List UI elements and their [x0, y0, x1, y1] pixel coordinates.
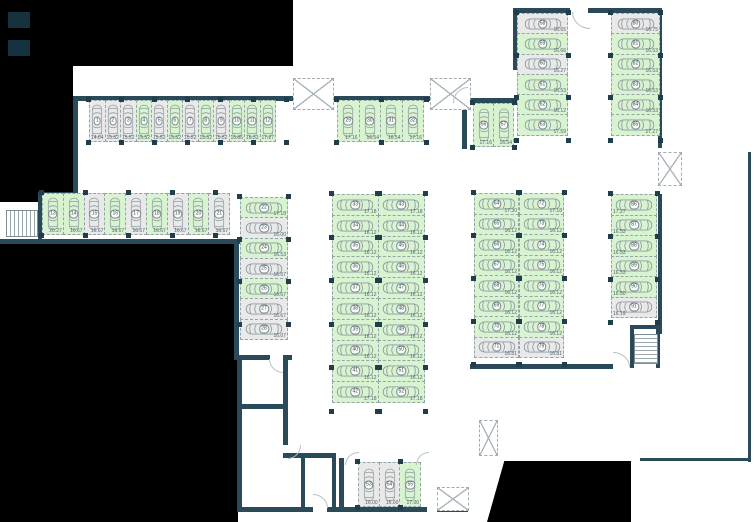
space-number: 63	[538, 121, 548, 130]
structural-column	[375, 278, 380, 283]
space-number: 60	[538, 60, 548, 69]
space-area: 16.86	[230, 135, 243, 141]
parking-space-64[interactable]: 64 17.30	[474, 193, 519, 215]
parking-space-72[interactable]: 72 17.18	[519, 193, 564, 215]
parking-space-83[interactable]: 83 16.53	[611, 74, 660, 95]
space-number: 64	[492, 199, 502, 208]
stairs-icon	[6, 210, 38, 237]
parking-space-42[interactable]: 42 17.18	[332, 381, 379, 403]
structural-column	[471, 362, 476, 367]
parking-space-5[interactable]: 5 15.52	[151, 100, 168, 142]
space-number: 83	[631, 80, 641, 89]
space-number: 88	[629, 241, 639, 250]
structural-column	[126, 233, 131, 238]
structural-column	[375, 191, 380, 196]
space-area: 16.00	[386, 500, 399, 506]
space-number: 7	[187, 117, 194, 126]
space-number: 3	[125, 117, 132, 126]
parking-space-55[interactable]: 55 17.00	[399, 462, 421, 507]
space-number: 89	[629, 262, 639, 271]
parking-space-87[interactable]: 87 16.53	[611, 215, 657, 237]
parking-col-33-42: 33 17.18 34 16.12 35 16.12 36 16.12 37 1…	[332, 194, 379, 403]
parking-space-67[interactable]: 67 16.12	[474, 255, 519, 277]
structural-column	[375, 322, 380, 327]
space-number: 19	[173, 210, 183, 219]
space-number: 77	[537, 302, 547, 311]
space-area: 17.59	[553, 129, 566, 135]
parking-space-2[interactable]: 2 15.52	[105, 100, 122, 142]
space-number: 36	[350, 263, 360, 272]
space-number: 46	[396, 263, 406, 272]
space-number: 33	[350, 200, 360, 209]
parking-space-37[interactable]: 37 16.12	[332, 277, 379, 299]
space-number: 80	[631, 19, 641, 28]
structural-column	[375, 365, 380, 370]
structural-column	[126, 190, 131, 195]
parking-space-73[interactable]: 73 16.12	[519, 214, 564, 236]
space-number: 79	[537, 343, 547, 352]
parking-space-84[interactable]: 84 16.53	[611, 94, 660, 115]
parking-space-44[interactable]: 44 16.12	[378, 215, 425, 237]
parking-space-81[interactable]: 81 16.53	[611, 33, 660, 54]
space-number: 76	[537, 281, 547, 290]
parking-col-80-85: 80 16.75 81 16.53 82 16.53 83 16.53 84 1…	[611, 13, 660, 136]
space-number: 23	[259, 223, 269, 232]
wall	[327, 507, 339, 512]
space-area: 16.67	[174, 228, 187, 234]
structural-column	[334, 97, 339, 102]
void-area	[0, 0, 293, 66]
space-number: 21	[214, 210, 224, 219]
parking-space-60[interactable]: 60 16.27	[517, 54, 568, 75]
structural-column	[329, 322, 334, 327]
structural-column	[251, 140, 256, 145]
parking-space-31[interactable]: 31 16.54	[380, 100, 403, 142]
space-area: 17.16	[409, 135, 422, 141]
parking-space-25[interactable]: 25 16.67	[240, 258, 288, 279]
structural-column	[655, 320, 660, 325]
parking-space-18[interactable]: 18 16.67	[146, 193, 168, 235]
wall	[470, 364, 613, 369]
parking-space-43[interactable]: 43 17.18	[378, 194, 425, 216]
parking-col-43-52: 43 17.18 44 16.12 45 16.12 46 16.12 47 1…	[378, 194, 425, 403]
structural-column	[608, 53, 613, 58]
wall	[237, 507, 313, 512]
structural-column	[514, 53, 519, 58]
parking-col-58-63: 58 16.65 59 16.66 60 16.27 61 16.53 62 1…	[517, 13, 568, 136]
parking-space-35[interactable]: 35 16.12	[332, 236, 379, 258]
space-number: 9	[218, 117, 225, 126]
parking-space-86[interactable]: 86 17.27	[611, 194, 657, 216]
structural-column	[423, 365, 428, 370]
structural-column	[512, 100, 517, 105]
wall	[0, 239, 240, 244]
space-area: 16.67	[195, 228, 208, 234]
parking-space-29[interactable]: 29 17.16	[337, 100, 360, 142]
structural-column	[237, 322, 242, 327]
structural-column	[514, 10, 519, 15]
space-area: 15.52	[168, 135, 181, 141]
structural-column	[516, 319, 521, 324]
structural-column	[608, 320, 613, 325]
parking-space-17[interactable]: 17 16.67	[125, 193, 147, 235]
space-number: 20	[194, 210, 204, 219]
wall	[339, 507, 427, 512]
space-area: 17.16	[479, 140, 492, 146]
space-number: 61	[538, 80, 548, 89]
space-number: 6	[171, 117, 178, 126]
parking-space-10[interactable]: 10 16.86	[229, 100, 246, 142]
space-number: 59	[538, 39, 548, 48]
space-area: 16.00	[365, 500, 378, 506]
space-number: 91	[629, 303, 639, 312]
parking-space-46[interactable]: 46 16.12	[378, 256, 425, 278]
structural-column	[566, 138, 571, 143]
parking-space-79[interactable]: 79 16.81	[519, 337, 564, 359]
space-number: 42	[350, 388, 360, 397]
space-number: 14	[69, 210, 79, 219]
parking-space-40[interactable]: 40 16.12	[332, 340, 379, 362]
shaft-icon	[658, 152, 682, 186]
parking-space-53[interactable]: 53 16.00	[358, 462, 380, 507]
structural-column	[655, 191, 660, 196]
space-number: 71	[492, 343, 502, 352]
space-number: 26	[259, 284, 269, 293]
parking-space-70[interactable]: 70 16.12	[474, 316, 519, 338]
parking-space-20[interactable]: 20 16.67	[188, 193, 210, 235]
space-number: 41	[350, 367, 360, 376]
space-area: 14.04	[91, 135, 104, 141]
parking-space-12[interactable]: 12 17.27	[260, 100, 277, 142]
structural-column	[423, 191, 428, 196]
parking-space-91[interactable]: 91 16.19	[611, 297, 657, 319]
space-number: 1	[94, 117, 101, 126]
wall	[658, 194, 662, 334]
structural-column	[562, 233, 567, 238]
structural-column	[152, 140, 157, 145]
structural-column	[608, 138, 613, 143]
parking-space-63[interactable]: 63 17.59	[517, 114, 568, 135]
space-area: 16.54	[499, 140, 512, 146]
space-area: 16.67	[112, 228, 125, 234]
space-number: 25	[259, 264, 269, 273]
space-number: 72	[537, 199, 547, 208]
space-number: 56	[479, 121, 489, 130]
parking-space-33[interactable]: 33 17.18	[332, 194, 379, 216]
stairs-icon	[634, 334, 658, 364]
parking-space-61[interactable]: 61 16.53	[517, 74, 568, 95]
space-number: 39	[350, 325, 360, 334]
structural-column	[566, 53, 571, 58]
parking-space-21[interactable]: 21 16.67	[208, 193, 230, 235]
structural-column	[424, 97, 429, 102]
space-number: 69	[492, 302, 502, 311]
space-number: 30	[365, 117, 375, 126]
parking-space-75[interactable]: 75 16.12	[519, 255, 564, 277]
parking-space-57[interactable]: 57 16.54	[493, 103, 514, 147]
space-number: 66	[492, 240, 502, 249]
parking-space-1[interactable]: 1 14.04	[89, 100, 106, 142]
structural-column	[286, 279, 291, 284]
parking-space-26[interactable]: 26 16.67	[240, 278, 288, 299]
parking-space-36[interactable]: 36 16.12	[332, 256, 379, 278]
structural-column	[334, 140, 339, 145]
parking-row-13-21: 13 20.27 14 16.67 15 16.67 16 16.67 17 1…	[42, 193, 230, 235]
parking-space-23[interactable]: 23 16.00	[240, 217, 288, 238]
parking-space-39[interactable]: 39 16.12	[332, 319, 379, 341]
structural-column	[251, 97, 256, 102]
space-number: 15	[90, 210, 100, 219]
parking-space-45[interactable]: 45 16.12	[378, 236, 425, 258]
parking-space-13[interactable]: 13 20.27	[42, 193, 64, 235]
space-area: 17.27	[261, 135, 274, 141]
structural-column	[329, 365, 334, 370]
structural-column	[424, 140, 429, 145]
wall	[748, 152, 751, 462]
parking-space-90[interactable]: 90 16.50	[611, 276, 657, 298]
parking-space-3[interactable]: 3 15.52	[120, 100, 137, 142]
parking-row-56-57: 56 17.16 57 16.54	[473, 103, 514, 147]
space-number: 57	[499, 121, 509, 130]
parking-space-4[interactable]: 4 15.52	[136, 100, 153, 142]
structural-column	[512, 145, 517, 150]
structural-column	[286, 237, 291, 242]
void-area	[0, 243, 238, 522]
structural-column	[658, 138, 663, 143]
space-number: 53	[364, 480, 374, 489]
structural-column	[284, 140, 289, 145]
space-area: 16.81	[504, 351, 517, 357]
space-number: 45	[396, 242, 406, 251]
parking-space-56[interactable]: 56 17.16	[473, 103, 494, 147]
parking-space-71[interactable]: 71 16.81	[474, 337, 519, 359]
space-number: 55	[405, 480, 415, 489]
space-area: 17.18	[410, 396, 423, 402]
shaft-icon	[479, 420, 498, 456]
parking-space-48[interactable]: 48 16.12	[378, 298, 425, 320]
space-number: 27	[259, 305, 269, 314]
parking-space-30[interactable]: 30 16.54	[359, 100, 382, 142]
structural-column	[86, 97, 91, 102]
structural-column	[185, 97, 190, 102]
parking-space-66[interactable]: 66 16.12	[474, 234, 519, 256]
structural-column	[471, 190, 476, 195]
parking-space-14[interactable]: 14 16.67	[63, 193, 85, 235]
structural-column	[329, 409, 334, 414]
space-number: 70	[492, 322, 502, 331]
structural-column	[375, 235, 380, 240]
space-number: 38	[350, 304, 360, 313]
space-number: 24	[259, 244, 269, 253]
structural-column	[170, 190, 175, 195]
parking-space-76[interactable]: 76 16.12	[519, 275, 564, 297]
parking-space-78[interactable]: 78 16.12	[519, 316, 564, 338]
space-area: 16.81	[549, 351, 562, 357]
parking-space-9[interactable]: 9 15.52	[213, 100, 230, 142]
parking-space-6[interactable]: 6 15.52	[167, 100, 184, 142]
space-number: 40	[350, 346, 360, 355]
structural-column	[514, 138, 519, 143]
parking-space-32[interactable]: 32 17.16	[402, 100, 425, 142]
structural-column	[423, 322, 428, 327]
space-number: 87	[629, 221, 639, 230]
space-number: 75	[537, 261, 547, 270]
space-number: 37	[350, 284, 360, 293]
space-number: 5	[156, 117, 163, 126]
parking-space-41[interactable]: 41 16.12	[332, 360, 379, 382]
structural-column	[562, 190, 567, 195]
space-number: 43	[396, 200, 406, 209]
parking-col-64-71: 64 17.30 65 16.12 66 16.12 67 16.12 68 1…	[474, 193, 519, 358]
structural-column	[83, 233, 88, 238]
space-number: 90	[629, 282, 639, 291]
structural-column	[379, 140, 384, 145]
parking-space-82[interactable]: 82 16.53	[611, 54, 660, 75]
structural-column	[329, 235, 334, 240]
parking-space-77[interactable]: 77 16.12	[519, 296, 564, 318]
parking-space-24[interactable]: 24 16.53	[240, 238, 288, 259]
parking-space-68[interactable]: 68 16.12	[474, 275, 519, 297]
structural-column	[608, 10, 613, 15]
space-number: 28	[259, 325, 269, 334]
structural-column	[39, 190, 44, 195]
parking-space-38[interactable]: 38 16.12	[332, 298, 379, 320]
parking-space-15[interactable]: 15 16.67	[84, 193, 106, 235]
space-number: 54	[385, 480, 395, 489]
structural-column	[237, 194, 242, 199]
structural-column	[39, 233, 44, 238]
parking-space-62[interactable]: 62 16.12	[517, 94, 568, 115]
parking-space-74[interactable]: 74 16.12	[519, 234, 564, 256]
structural-column	[516, 190, 521, 195]
parking-space-52[interactable]: 52 17.18	[378, 381, 425, 403]
space-number: 48	[396, 304, 406, 313]
space-number: 22	[259, 203, 269, 212]
structural-column	[375, 409, 380, 414]
wall	[339, 458, 344, 512]
parking-space-11[interactable]: 11 16.33	[244, 100, 261, 142]
wall	[237, 360, 242, 512]
door-arc	[269, 359, 283, 373]
structural-column	[516, 276, 521, 281]
structural-column	[398, 505, 403, 510]
space-number: 29	[343, 117, 353, 126]
structural-column	[119, 97, 124, 102]
space-number: 49	[396, 325, 406, 334]
parking-space-16[interactable]: 16 16.67	[104, 193, 126, 235]
structural-column	[170, 233, 175, 238]
space-area: 16.67	[70, 228, 83, 234]
space-number: 51	[396, 367, 406, 376]
space-number: 68	[492, 281, 502, 290]
structural-column	[152, 97, 157, 102]
parking-space-89[interactable]: 89 16.53	[611, 256, 657, 278]
wall	[234, 239, 239, 359]
space-number: 85	[631, 121, 641, 130]
structural-column	[562, 276, 567, 281]
parking-space-27[interactable]: 27 16.67	[240, 298, 288, 319]
space-number: 34	[350, 221, 360, 230]
parking-row-1-12: 1 14.04 2 15.52 3 15.52 4 15.52 5 15.52	[89, 100, 276, 142]
space-area: 20.27	[49, 228, 62, 234]
parking-space-47[interactable]: 47 16.12	[378, 277, 425, 299]
parking-space-80[interactable]: 80 16.75	[611, 13, 660, 34]
structural-column	[516, 233, 521, 238]
parking-space-50[interactable]: 50 16.12	[378, 340, 425, 362]
space-area: 17.16	[345, 135, 358, 141]
parking-space-85[interactable]: 85 17.27	[611, 114, 660, 135]
structural-column	[566, 95, 571, 100]
parking-space-69[interactable]: 69 16.12	[474, 296, 519, 318]
space-number: 8	[202, 117, 209, 126]
space-area: 16.67	[153, 228, 166, 234]
structural-column	[470, 100, 475, 105]
parking-space-28[interactable]: 28 16.07	[240, 319, 288, 340]
parking-space-59[interactable]: 59 16.66	[517, 33, 568, 54]
structural-column	[218, 140, 223, 145]
space-area: 15.52	[137, 135, 150, 141]
parking-col-22-28: 22 17.18 23 16.00 24 16.53 25 16.67 26 1…	[240, 197, 288, 340]
space-number: 52	[396, 388, 406, 397]
structural-column	[655, 277, 660, 282]
parking-row-29-32: 29 17.16 30 16.54 31 16.54 32 17.16	[337, 100, 424, 142]
structural-column	[86, 140, 91, 145]
structural-column	[608, 191, 613, 196]
parking-space-8[interactable]: 8 15.52	[198, 100, 215, 142]
space-area: 15.52	[106, 135, 119, 141]
space-number: 32	[408, 117, 418, 126]
space-number: 18	[152, 210, 162, 219]
door-arc	[416, 452, 429, 465]
structural-column	[608, 234, 613, 239]
space-number: 10	[232, 117, 242, 126]
parking-space-54[interactable]: 54 16.00	[379, 462, 401, 507]
parking-space-22[interactable]: 22 17.18	[240, 197, 288, 218]
structural-column	[398, 459, 403, 464]
parking-space-58[interactable]: 58 16.65	[517, 13, 568, 34]
parking-space-7[interactable]: 7 15.52	[182, 100, 199, 142]
parking-space-65[interactable]: 65 16.12	[474, 214, 519, 236]
wall	[237, 404, 288, 409]
space-number: 62	[538, 100, 548, 109]
space-number: 35	[350, 242, 360, 251]
shaft-icon	[293, 78, 334, 110]
structural-column	[213, 233, 218, 238]
structural-column	[329, 278, 334, 283]
parking-space-49[interactable]: 49 16.12	[378, 319, 425, 341]
structural-column	[471, 276, 476, 281]
door-arc	[613, 352, 630, 367]
space-number: 74	[537, 240, 547, 249]
space-area: 16.54	[388, 135, 401, 141]
structural-column	[423, 409, 428, 414]
structural-column	[470, 145, 475, 150]
structural-column	[237, 279, 242, 284]
space-area: 17.18	[364, 396, 377, 402]
parking-space-88[interactable]: 88 16.53	[611, 235, 657, 257]
parking-row-53-55: 53 16.00 54 16.00 55 17.00	[358, 462, 421, 507]
parking-space-34[interactable]: 34 16.12	[332, 215, 379, 237]
structural-column	[237, 237, 242, 242]
parking-space-51[interactable]: 51 16.12	[378, 360, 425, 382]
structural-column	[355, 459, 360, 464]
structural-column	[471, 319, 476, 324]
parking-space-19[interactable]: 19 16.67	[167, 193, 189, 235]
space-number: 17	[131, 210, 141, 219]
space-number: 12	[263, 117, 273, 126]
space-number: 86	[629, 200, 639, 209]
structural-column	[423, 278, 428, 283]
